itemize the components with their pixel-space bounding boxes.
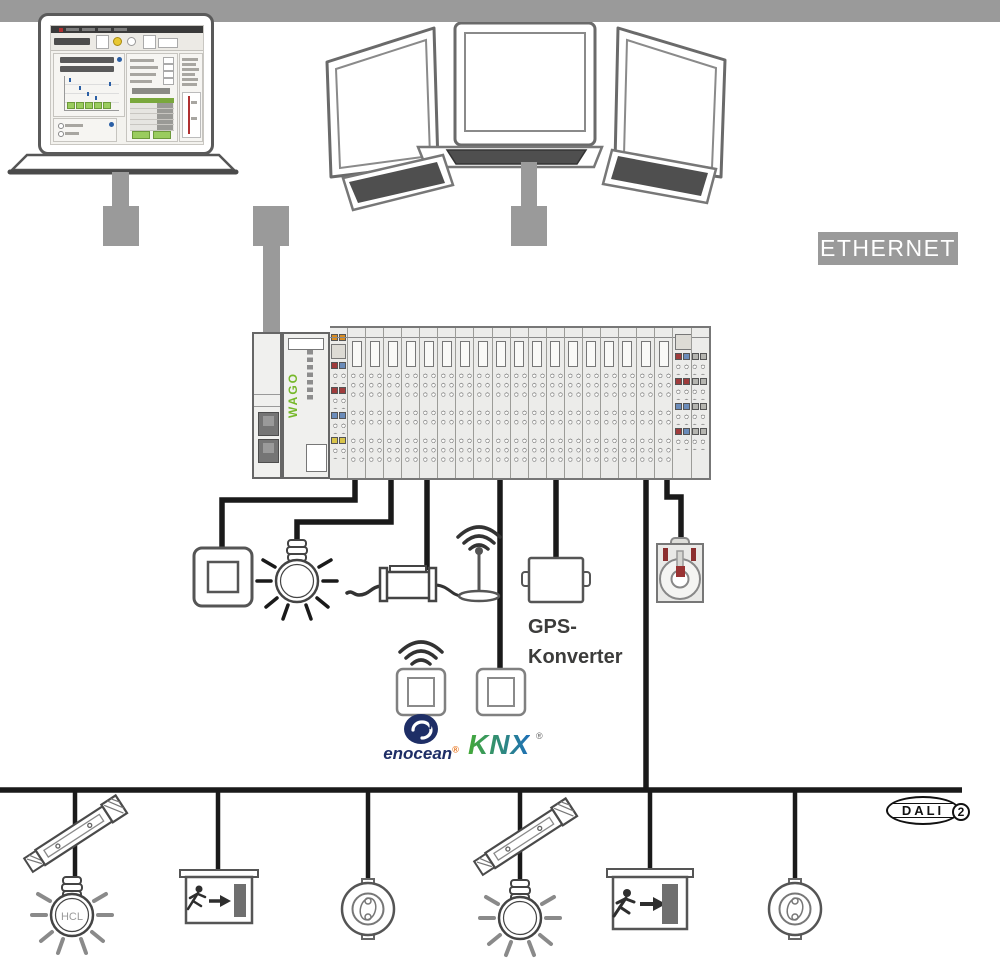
module-button (675, 334, 692, 350)
wire-lamp (297, 480, 391, 540)
app-ok-button (132, 131, 150, 139)
bulb-on-icon (113, 37, 122, 46)
io-module-slice (366, 328, 384, 478)
app-tool-field (158, 38, 178, 48)
ethernet-label: ETHERNET (818, 232, 958, 265)
app-options-panel (53, 118, 117, 142)
monitor-stand (521, 162, 537, 210)
io-module-end-modules (673, 328, 709, 478)
registered-mark: ® (536, 731, 543, 741)
app-menu-item (98, 28, 111, 31)
controller-bus-coupler (252, 332, 282, 479)
app-chart-panel (53, 53, 125, 117)
ethernet-junction-laptop (103, 206, 139, 246)
light-fixture-2 (473, 798, 578, 876)
controller-status-leds (307, 350, 313, 402)
app-button (60, 57, 114, 63)
app-close-icon (59, 28, 63, 32)
presence-sensor-1 (342, 879, 394, 939)
controller-cpu: WAGO (282, 332, 330, 479)
ethernet-port-2 (258, 439, 279, 463)
app-toolbar (51, 33, 203, 51)
io-module-slice (583, 328, 601, 478)
dali-2-logo: DALI 2 (886, 796, 970, 830)
io-module-slice (438, 328, 456, 478)
controller-label-slot (288, 338, 324, 350)
io-module-slice (511, 328, 529, 478)
app-toolbar-button (54, 38, 90, 45)
app-button (60, 66, 114, 72)
io-module-slice (456, 328, 474, 478)
app-menubar (51, 26, 203, 33)
antenna (459, 547, 499, 601)
registered-mark: ® (452, 744, 459, 754)
presence-sensor-2 (769, 879, 821, 939)
gps-converter-label: GPS- Konverter (528, 612, 622, 672)
laptop-uplink (112, 172, 129, 210)
app-menu-item (114, 28, 127, 31)
gps-converter (522, 558, 590, 602)
knx-logo-text: KNX (468, 729, 530, 761)
app-field (163, 64, 174, 71)
enocean-wireless-switch (397, 642, 445, 715)
dali-lamp (480, 880, 560, 955)
app-curve-box (182, 92, 201, 138)
exit-sign-1 (180, 870, 258, 923)
lamp (257, 540, 337, 619)
wall-switch (194, 548, 252, 606)
wire-switch (222, 480, 355, 548)
wifi-waves-switch (400, 642, 442, 664)
app-tool-icon (96, 35, 109, 49)
module-button (331, 344, 346, 359)
io-module-slice (619, 328, 637, 478)
app-cancel-button (153, 131, 171, 139)
dali-version-badge: 2 (952, 803, 970, 821)
knx-switch (477, 669, 525, 715)
io-module-slice (474, 328, 492, 478)
app-menu-item (66, 28, 79, 31)
io-module-slice (493, 328, 511, 478)
ethernet-junction-monitors (511, 206, 547, 246)
enocean-logo-text: enocean® (381, 744, 461, 764)
laptop-screen (38, 13, 214, 155)
app-radio (58, 123, 64, 129)
dali-logo-text: DALI (886, 796, 960, 825)
app-table (130, 98, 174, 131)
controller-uplink (263, 242, 280, 334)
app-list-panel (179, 53, 203, 142)
io-module-slice (637, 328, 655, 478)
hcl-lamp: HCL (32, 877, 112, 953)
io-module-slice (529, 328, 547, 478)
io-module-power (330, 328, 348, 478)
app-schedule-chart (64, 76, 119, 111)
bulb-off-icon (127, 37, 136, 46)
center-keyboard (447, 150, 586, 164)
exit-sign-2 (607, 869, 693, 929)
io-module-slice (420, 328, 438, 478)
app-info-icon (117, 57, 122, 62)
hcl-label: HCL (61, 911, 83, 923)
app-tool-icon (143, 35, 156, 49)
app-info-icon (109, 122, 114, 127)
app-radio (58, 131, 64, 137)
app-menu-item (82, 28, 95, 31)
io-module-slice (565, 328, 583, 478)
lighting-software-window (50, 25, 204, 145)
ethernet-port-1 (258, 412, 279, 436)
center-monitor (455, 23, 595, 145)
io-module-slice (402, 328, 420, 478)
io-module-slice (547, 328, 565, 478)
wifi-waves-antenna (458, 527, 500, 549)
wire-current-sensor (667, 480, 681, 542)
io-module-slice (348, 328, 366, 478)
io-module-slice (655, 328, 673, 478)
controller-service-port (306, 444, 327, 472)
enocean-logo-icon (404, 714, 438, 744)
ethernet-junction-controller (253, 206, 289, 246)
io-module-slice (384, 328, 402, 478)
io-module-standard-slices (348, 328, 673, 478)
app-settings-panel (126, 53, 178, 142)
io-module-slice (601, 328, 619, 478)
app-button (132, 88, 170, 94)
system-diagram: HCL (0, 0, 1000, 960)
app-field (163, 57, 174, 64)
app-field (163, 71, 174, 78)
enocean-gateway (347, 527, 500, 601)
wago-logo: WAGO (286, 354, 300, 418)
app-field (163, 78, 174, 85)
current-sensor (657, 538, 703, 602)
io-module-rack (330, 326, 711, 480)
